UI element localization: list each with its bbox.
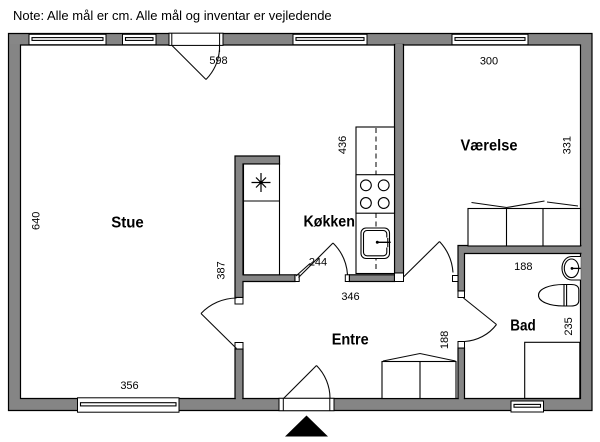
svg-text:Bad: Bad [510,318,536,335]
svg-text:598: 598 [209,55,227,67]
svg-text:Værelse: Værelse [461,138,518,155]
svg-text:244: 244 [309,257,327,269]
svg-text:387: 387 [215,261,227,279]
svg-text:640: 640 [30,212,42,230]
svg-text:Entre: Entre [332,332,369,349]
svg-text:346: 346 [341,291,359,303]
svg-text:Stue: Stue [111,215,144,232]
svg-text:188: 188 [514,261,532,273]
svg-text:436: 436 [337,136,349,154]
svg-text:Note: Alle mål er cm. Alle mål: Note: Alle mål er cm. Alle mål og invent… [13,8,332,23]
svg-text:356: 356 [120,380,138,392]
svg-text:235: 235 [563,317,575,335]
svg-text:331: 331 [562,136,574,154]
svg-text:300: 300 [480,56,498,68]
svg-text:188: 188 [439,331,451,349]
svg-text:Køkken: Køkken [303,214,355,231]
